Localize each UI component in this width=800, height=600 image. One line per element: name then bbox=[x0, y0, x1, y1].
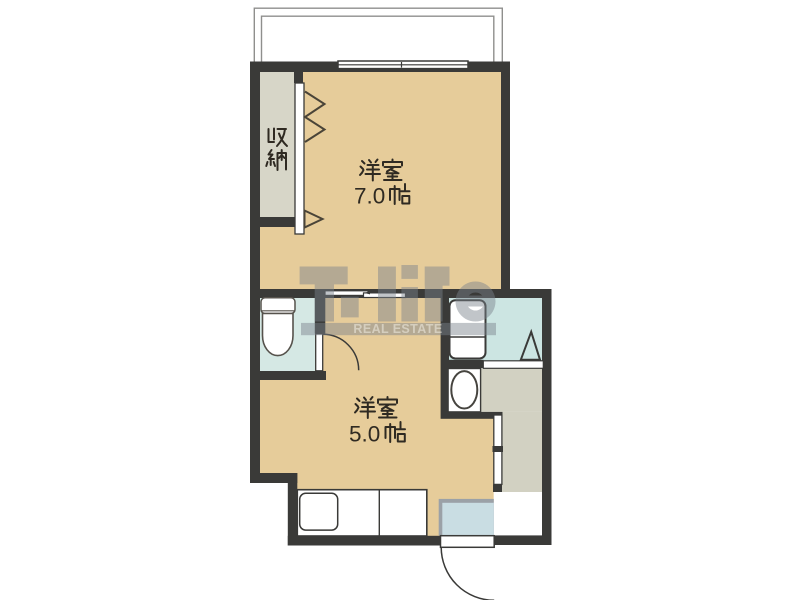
svg-text:7.0: 7.0 bbox=[354, 184, 385, 209]
svg-text:5.0: 5.0 bbox=[349, 422, 380, 447]
svg-text:REAL ESTATE: REAL ESTATE bbox=[353, 322, 442, 336]
